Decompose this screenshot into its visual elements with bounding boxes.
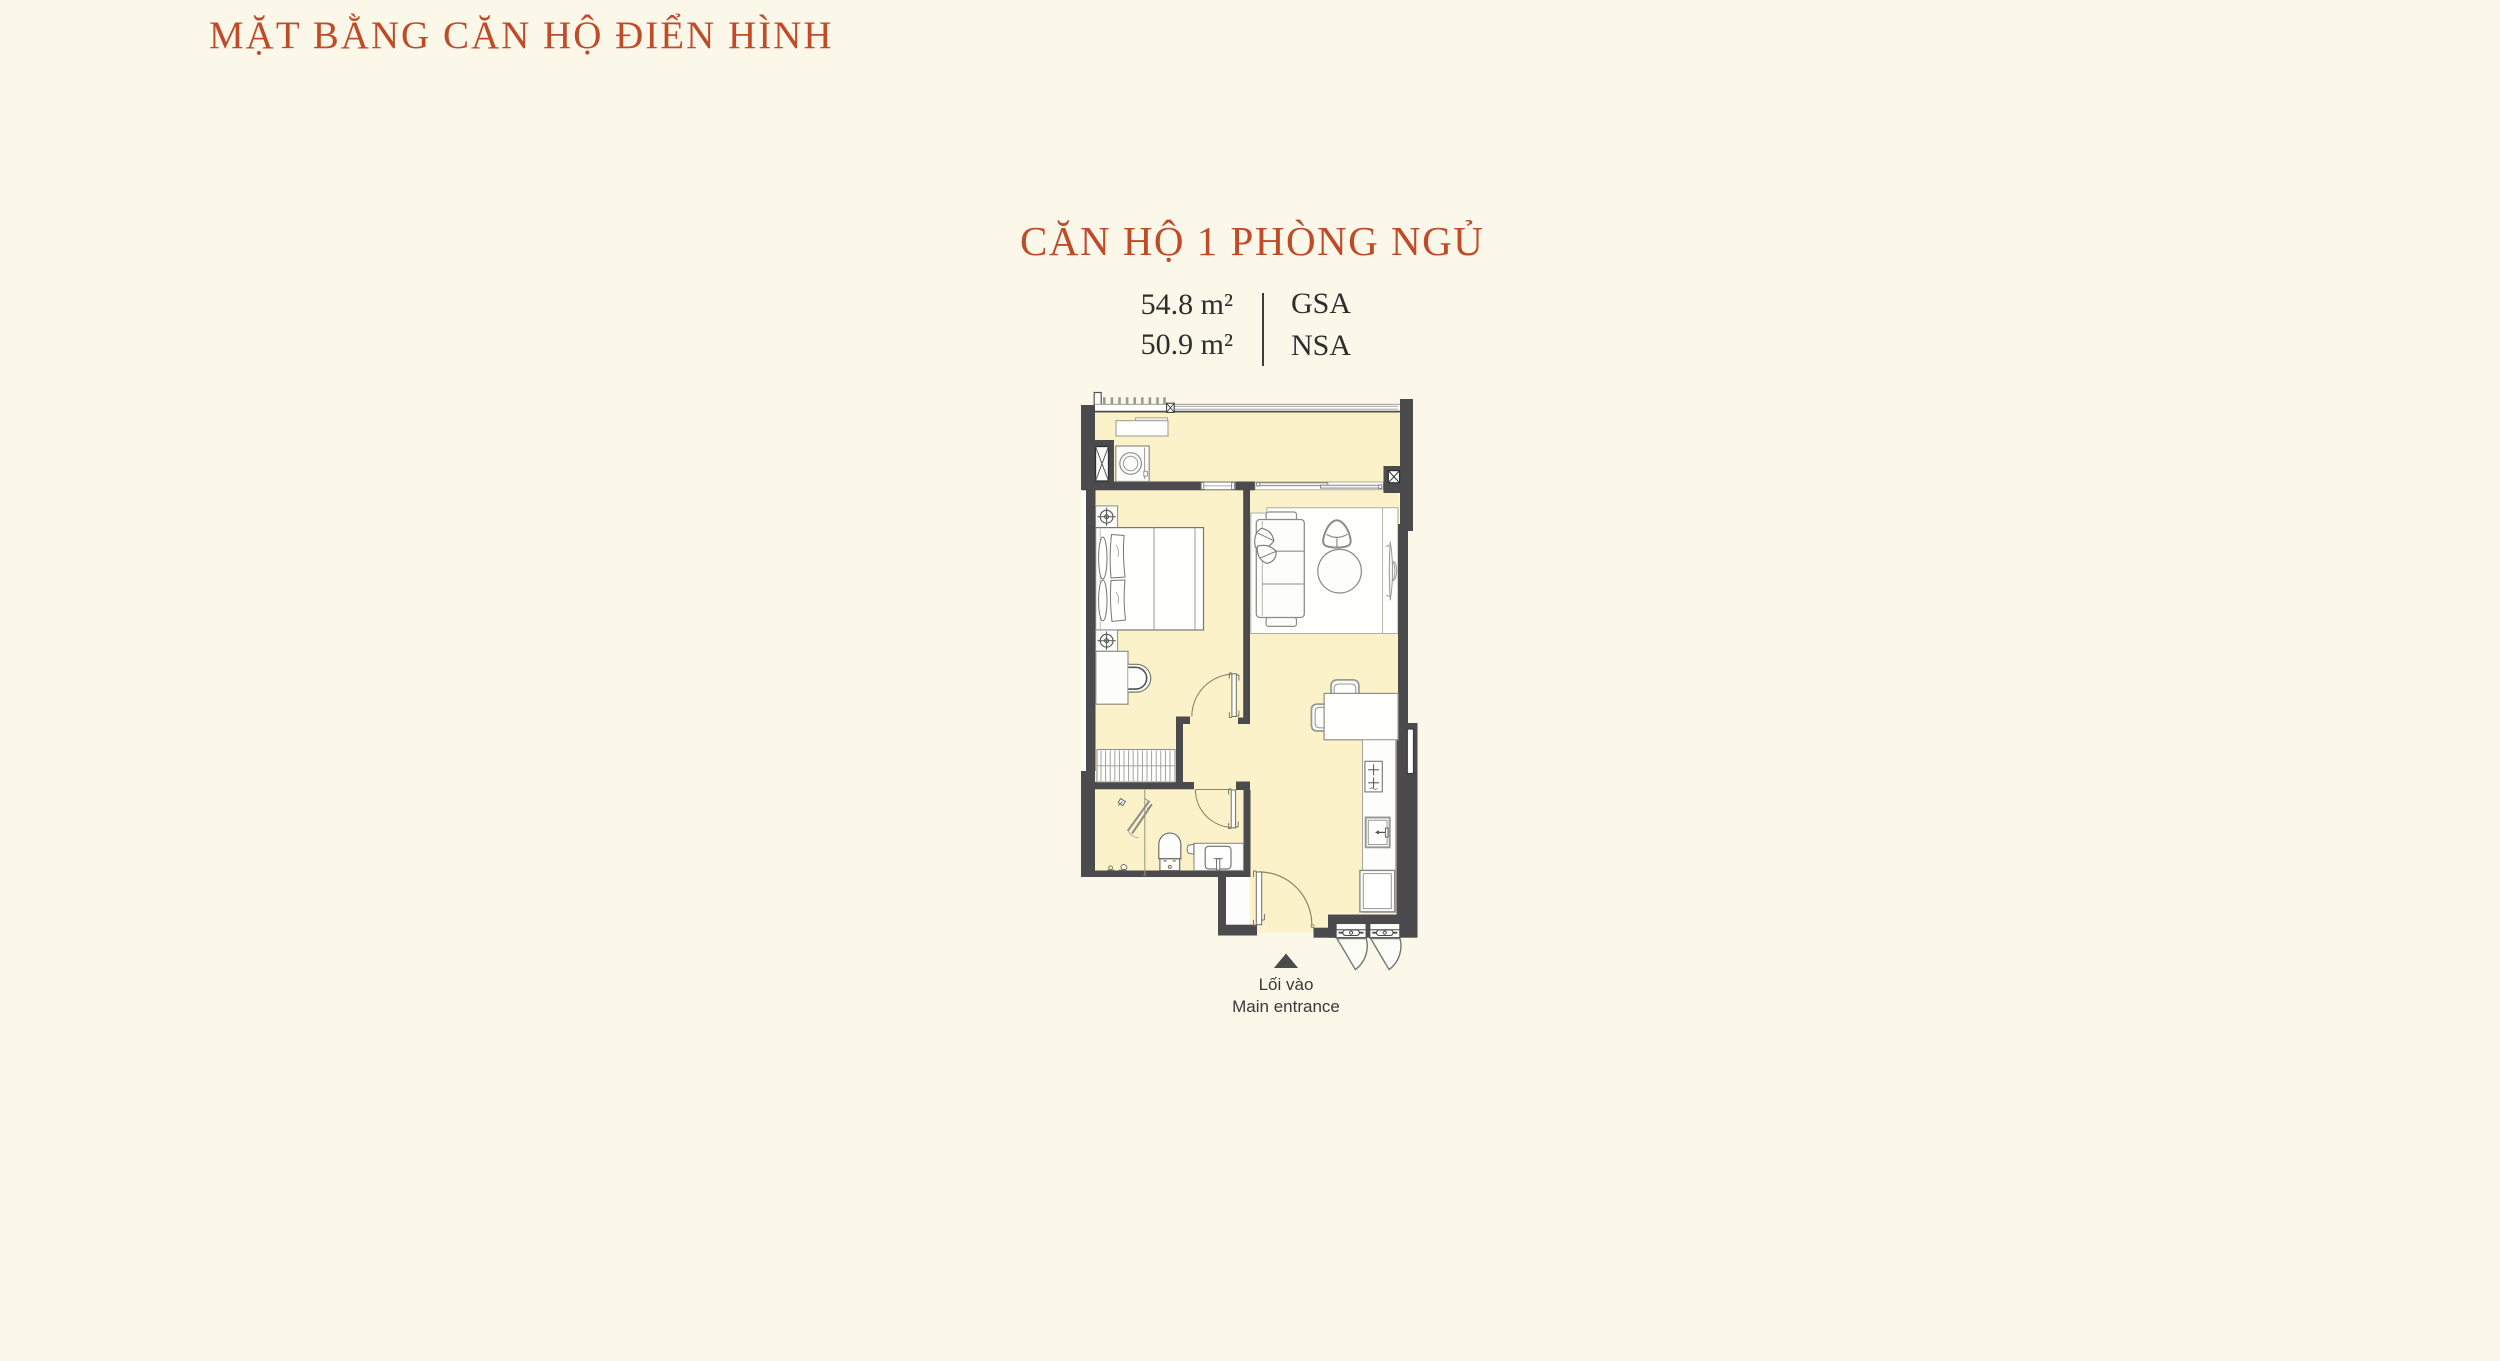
svg-text:Lối vào: Lối vào bbox=[1259, 975, 1314, 994]
svg-text:Main entrance: Main entrance bbox=[1232, 997, 1340, 1016]
